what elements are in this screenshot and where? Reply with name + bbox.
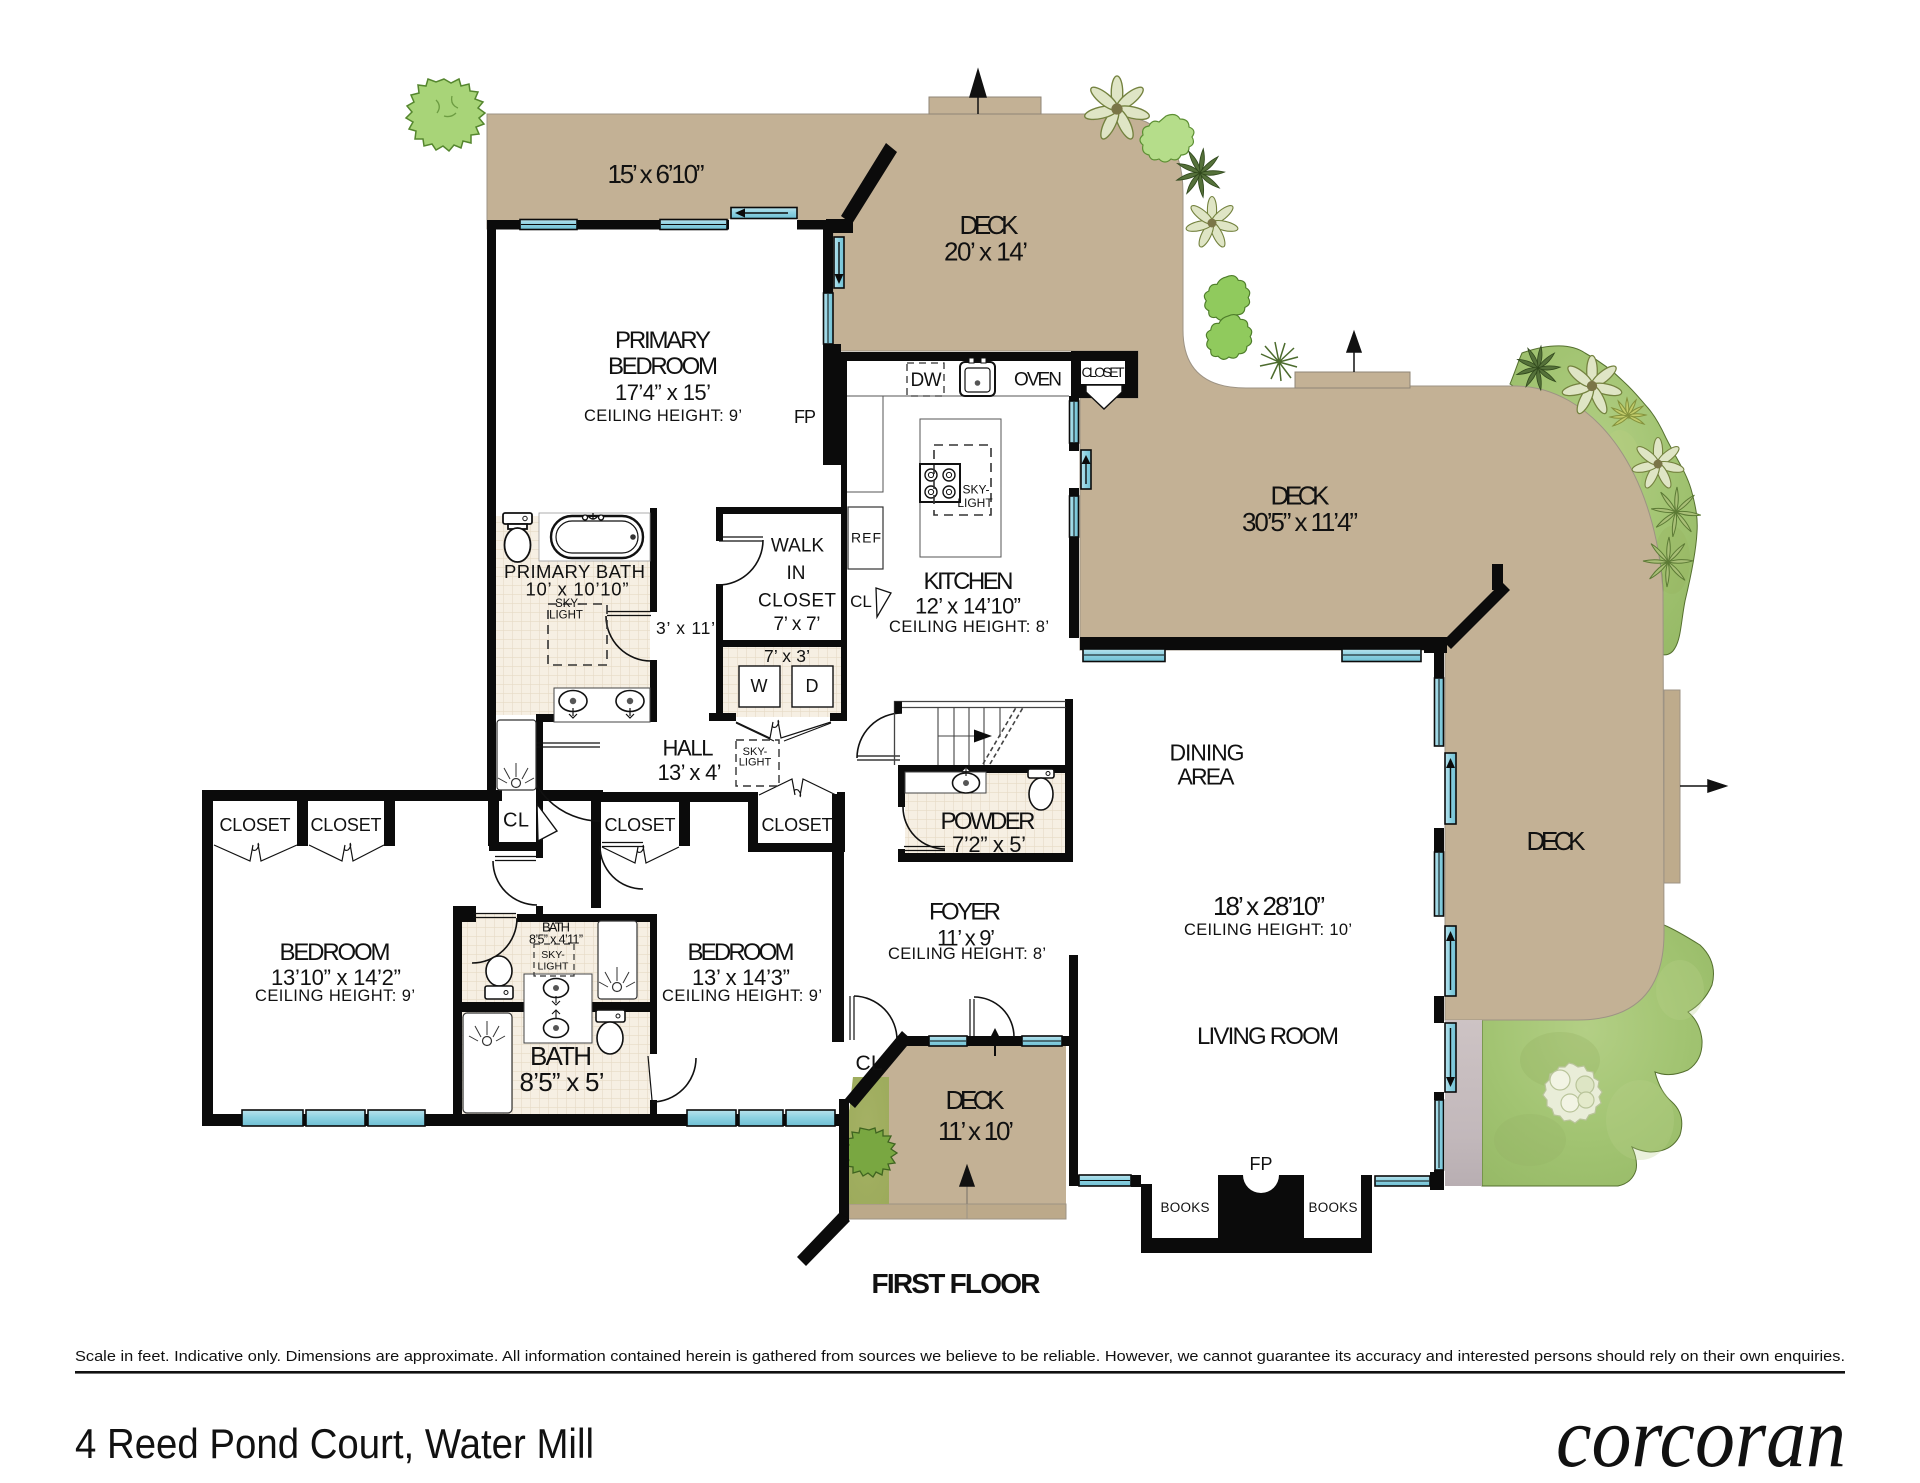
svg-text:12’ x 14’10”: 12’ x 14’10” [915, 594, 1021, 619]
svg-text:OVEN: OVEN [1014, 370, 1062, 391]
svg-text:CEILING HEIGHT: 9’: CEILING HEIGHT: 9’ [584, 407, 742, 425]
svg-text:BEDROOM: BEDROOM [688, 939, 795, 966]
svg-text:10’ x 10’10”: 10’ x 10’10” [526, 579, 629, 600]
svg-text:LIGHT: LIGHT [549, 610, 583, 622]
svg-text:CL: CL [850, 592, 872, 611]
svg-text:BOOKS: BOOKS [1309, 1200, 1358, 1215]
svg-text:CL: CL [503, 810, 529, 832]
svg-text:LIVING ROOM: LIVING ROOM [1197, 1023, 1339, 1050]
svg-text:17’4” x 15’: 17’4” x 15’ [615, 380, 711, 405]
svg-text:CEILING HEIGHT: 8’: CEILING HEIGHT: 8’ [888, 945, 1046, 963]
svg-text:20’ x 14’: 20’ x 14’ [944, 237, 1028, 267]
svg-text:BEDROOM: BEDROOM [608, 353, 718, 380]
svg-text:FOYER: FOYER [929, 899, 1001, 926]
svg-text:LIGHT: LIGHT [538, 961, 570, 973]
svg-text:FIRST FLOOR: FIRST FLOOR [872, 1268, 1041, 1299]
svg-text:W: W [751, 676, 768, 696]
svg-text:BOOKS: BOOKS [1161, 1200, 1210, 1215]
svg-text:WALK: WALK [771, 536, 824, 557]
svg-text:DECK: DECK [960, 210, 1020, 240]
svg-text:DECK: DECK [946, 1085, 1006, 1115]
svg-text:LIGHT: LIGHT [739, 757, 772, 769]
svg-text:DECK: DECK [1527, 826, 1587, 856]
svg-text:CEILING HEIGHT: 9’: CEILING HEIGHT: 9’ [255, 987, 415, 1005]
svg-text:15’ x 6’10”: 15’ x 6’10” [608, 159, 705, 189]
svg-text:LIGHT: LIGHT [957, 496, 993, 510]
svg-text:DINING: DINING [1170, 740, 1245, 766]
svg-text:30’5” x 11’4”: 30’5” x 11’4” [1242, 507, 1358, 537]
svg-text:8’5” x 4’11”: 8’5” x 4’11” [529, 933, 583, 947]
svg-text:CLOSET: CLOSET [758, 591, 836, 612]
svg-text:SKY-: SKY- [555, 598, 581, 610]
svg-text:13’ x 4’: 13’ x 4’ [658, 760, 722, 785]
svg-text:CEILING HEIGHT: 8’: CEILING HEIGHT: 8’ [889, 618, 1049, 636]
svg-text:D: D [806, 676, 819, 696]
svg-text:IN: IN [787, 563, 806, 584]
svg-text:18’ x 28’10”: 18’ x 28’10” [1213, 891, 1325, 921]
svg-text:HALL: HALL [663, 736, 714, 761]
svg-text:SKY-: SKY- [963, 483, 990, 497]
svg-text:7’ x 7’: 7’ x 7’ [774, 614, 821, 635]
svg-text:11’ x 10’: 11’ x 10’ [938, 1116, 1014, 1146]
svg-text:CEILING HEIGHT: 10’: CEILING HEIGHT: 10’ [1184, 921, 1352, 939]
svg-text:7’2” x 5’: 7’2” x 5’ [952, 832, 1026, 857]
svg-text:SKY-: SKY- [541, 949, 565, 961]
svg-text:DECK: DECK [1271, 481, 1331, 511]
svg-text:DW: DW [911, 370, 942, 391]
svg-text:KITCHEN: KITCHEN [924, 568, 1014, 595]
svg-text:3’ x 11’: 3’ x 11’ [656, 618, 715, 638]
svg-text:CLOSET: CLOSET [605, 815, 676, 835]
svg-text:CLOSET: CLOSET [1082, 364, 1125, 380]
svg-text:7’ x 3’: 7’ x 3’ [764, 646, 810, 666]
svg-text:4 Reed Pond Court, Water Mill: 4 Reed Pond Court, Water Mill [75, 1420, 594, 1467]
svg-text:AREA: AREA [1178, 764, 1236, 790]
svg-text:CLOSET: CLOSET [220, 815, 291, 835]
svg-text:corcoran: corcoran [1556, 1389, 1846, 1483]
svg-text:FP: FP [1250, 1154, 1273, 1174]
svg-text:Scale in feet. Indicative only: Scale in feet. Indicative only. Dimensio… [75, 1349, 1845, 1365]
svg-text:REF: REF [851, 530, 881, 546]
svg-text:CLOSET: CLOSET [311, 815, 382, 835]
svg-text:BEDROOM: BEDROOM [280, 939, 391, 966]
svg-text:FP: FP [794, 407, 816, 427]
svg-text:CLOSET: CLOSET [762, 815, 833, 835]
svg-text:CL: CL [856, 1052, 883, 1075]
svg-text:PRIMARY: PRIMARY [615, 327, 711, 354]
svg-text:POWDER: POWDER [941, 808, 1036, 835]
svg-text:CEILING HEIGHT: 9’: CEILING HEIGHT: 9’ [662, 987, 822, 1005]
svg-text:8’5” x 5’: 8’5” x 5’ [520, 1067, 605, 1097]
